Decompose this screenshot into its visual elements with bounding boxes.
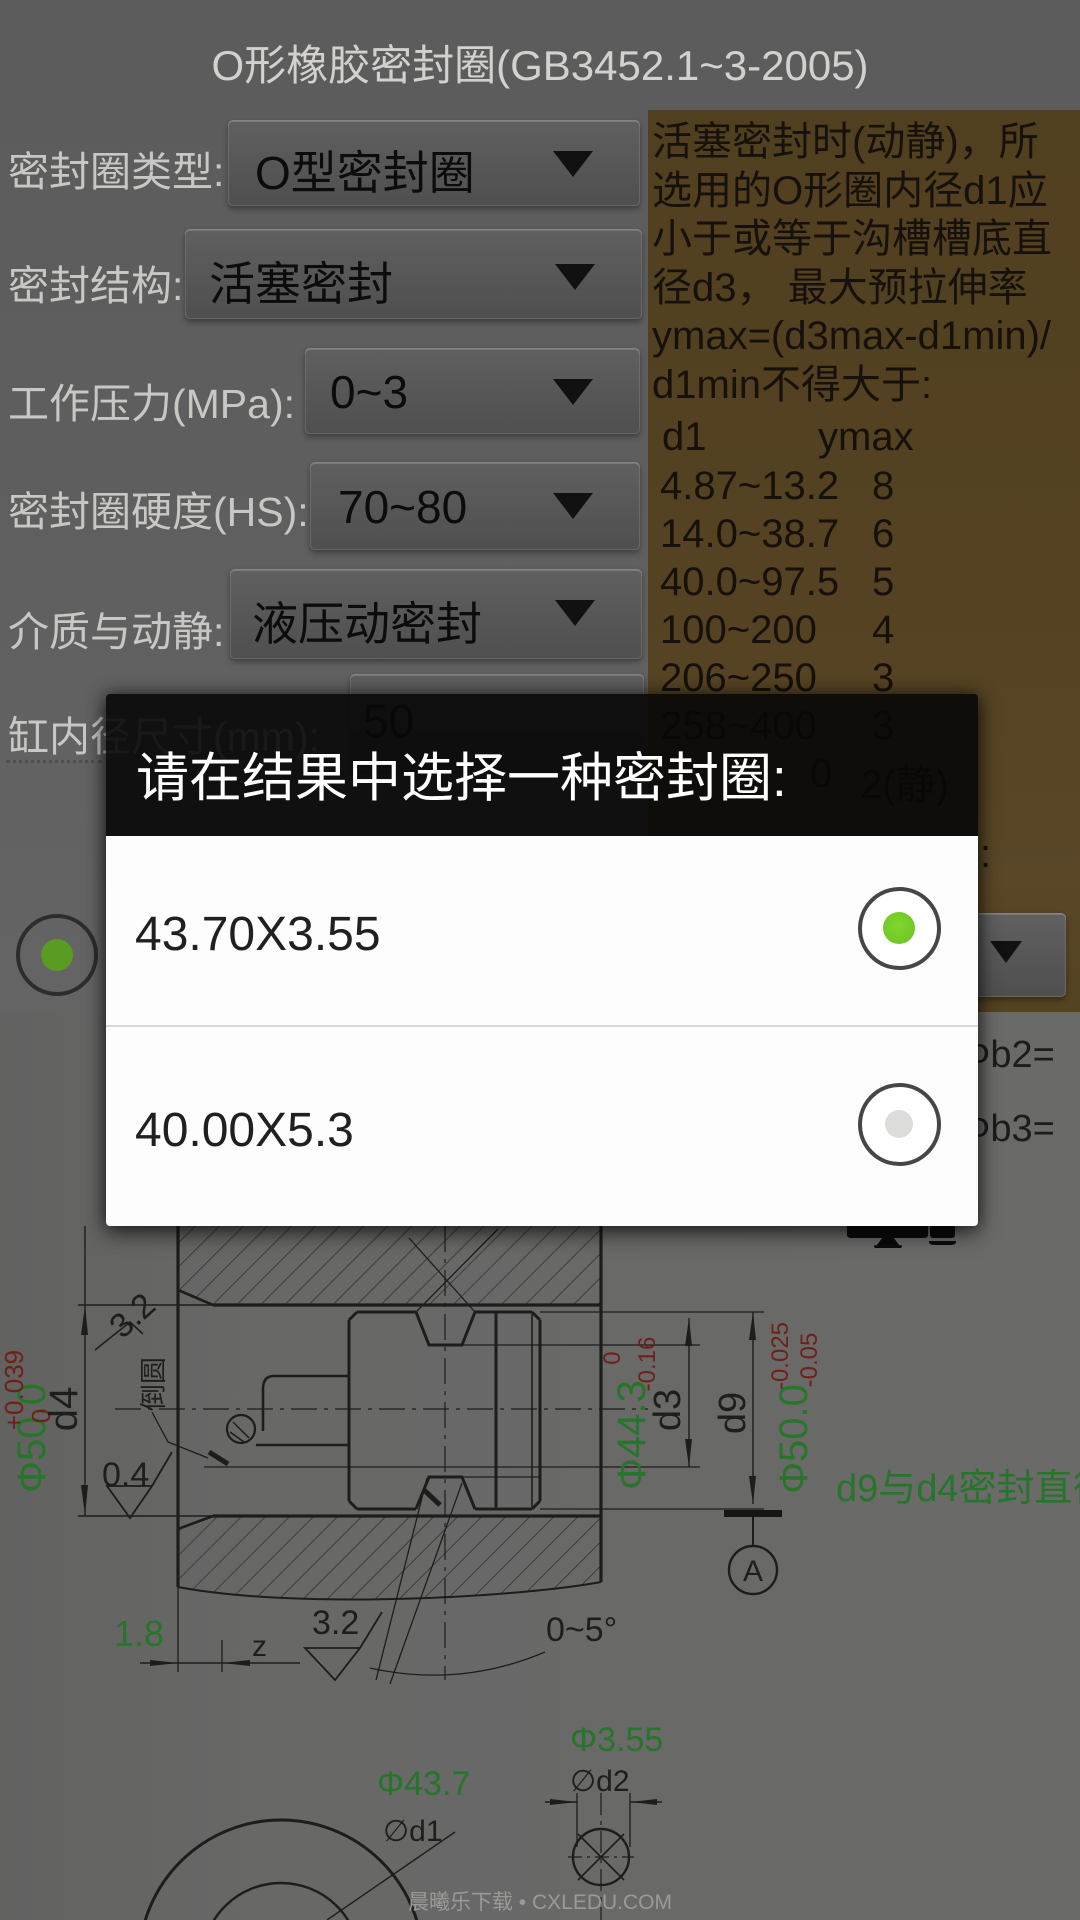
svg-text:-0.16: -0.16 <box>634 1337 661 1392</box>
svg-text:z: z <box>252 1630 267 1663</box>
svg-text:0.4: 0.4 <box>102 1456 149 1494</box>
svg-text:0: 0 <box>599 1351 626 1364</box>
svg-text:0~5°: 0~5° <box>546 1611 617 1649</box>
svg-text:d9: d9 <box>712 1392 754 1434</box>
svg-text:A: A <box>743 1555 763 1588</box>
svg-text:3.2: 3.2 <box>312 1604 359 1642</box>
svg-text:+0.039: +0.039 <box>0 1350 29 1430</box>
svg-text:Φ43.7: Φ43.7 <box>377 1765 470 1803</box>
svg-text:-0.05: -0.05 <box>796 1333 823 1388</box>
svg-text:d9与d4密封直径: d9与d4密封直径 <box>836 1468 1080 1510</box>
svg-text:倒圆: 倒圆 <box>139 1357 169 1411</box>
svg-text:Φ3.55: Φ3.55 <box>570 1721 663 1759</box>
svg-text:∅d1: ∅d1 <box>383 1815 443 1848</box>
svg-text:∅d2: ∅d2 <box>570 1765 630 1798</box>
svg-text:Φ50.0: Φ50.0 <box>772 1384 816 1494</box>
svg-text:d3: d3 <box>647 1389 689 1431</box>
svg-text:-0.025: -0.025 <box>767 1322 794 1390</box>
svg-text:1.8: 1.8 <box>114 1613 164 1654</box>
svg-text:d4: d4 <box>42 1387 86 1432</box>
